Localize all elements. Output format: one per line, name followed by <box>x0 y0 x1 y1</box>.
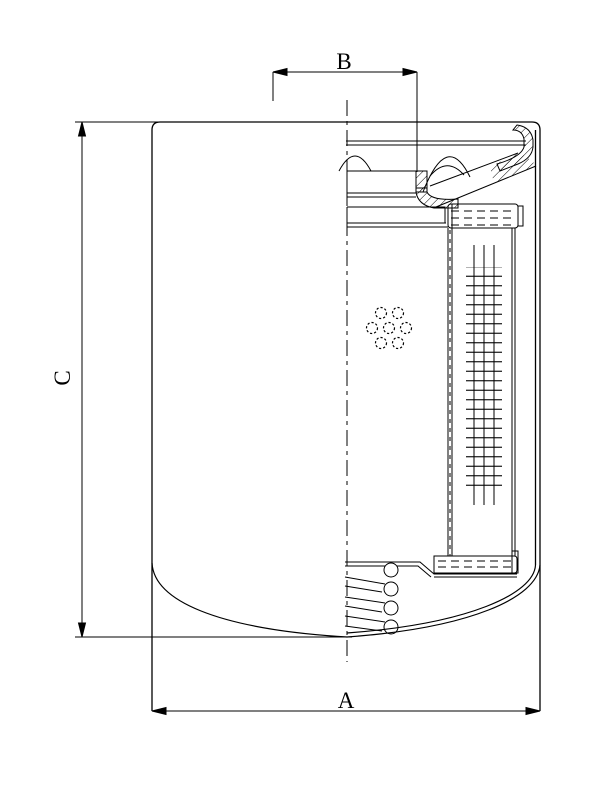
pleat-horizontal-lines <box>466 267 502 494</box>
drawing-background <box>0 0 612 792</box>
dim-a-label: A <box>338 688 355 713</box>
dim-b-label: B <box>336 49 351 74</box>
drawing-page: C B A <box>0 0 612 792</box>
spring-coil-circle <box>384 582 398 596</box>
technical-drawing-canvas: C B A <box>0 0 612 792</box>
dim-c-label: C <box>50 370 75 385</box>
spring-coil-circle <box>384 563 398 577</box>
spring-coil-circle <box>384 601 398 615</box>
